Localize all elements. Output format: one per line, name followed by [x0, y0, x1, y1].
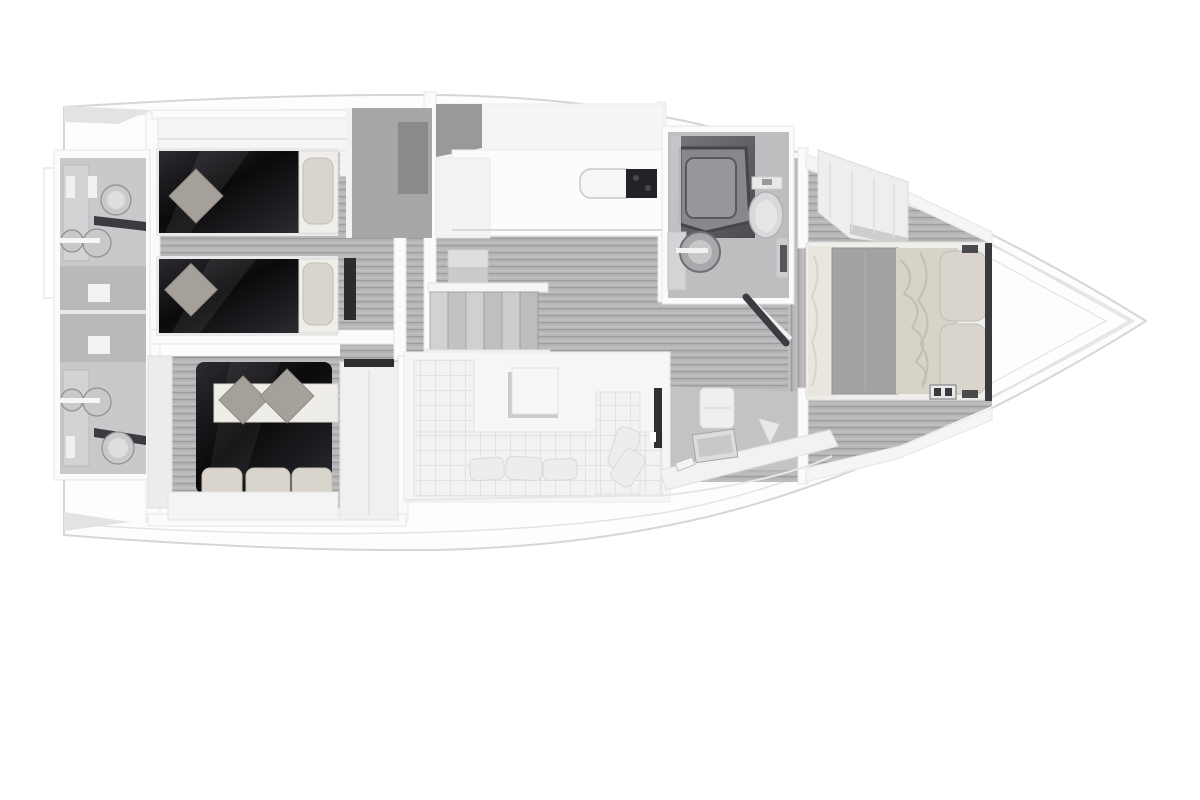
aft-head-lower [58, 362, 146, 474]
faucet [58, 398, 100, 403]
head-toilet [749, 177, 783, 238]
wardrobe-top-trim [344, 359, 394, 367]
toilet-seat [755, 200, 777, 232]
mid-compartment [346, 108, 432, 238]
salon-door-knob [650, 432, 656, 442]
towel-dark [780, 245, 787, 272]
pillow [940, 324, 986, 394]
toilet-seat [107, 191, 125, 209]
buckle [934, 388, 941, 396]
towel-bar [66, 436, 75, 458]
compartment-inner [398, 122, 428, 194]
cooktop-burner [645, 185, 651, 191]
frame-bracket [962, 390, 978, 398]
shower-tray [686, 158, 736, 218]
cooktop-burner [633, 175, 639, 181]
wardrobe [340, 359, 398, 520]
aft-head-upper [58, 158, 146, 266]
frame-bracket [962, 245, 978, 253]
shower-sill [671, 136, 681, 236]
sofa-pillow [469, 457, 504, 481]
stair-treads [430, 292, 538, 352]
compartment-left-trim [346, 108, 352, 238]
locker-column [148, 356, 172, 508]
towel-bar [66, 176, 75, 198]
coffee-table [508, 368, 558, 418]
stair-rail-top [428, 283, 548, 292]
sofa-pillow [505, 456, 542, 481]
stair-tread [448, 292, 466, 352]
galley-counter-left [436, 158, 490, 238]
buckle [945, 388, 952, 396]
stair-landing-upper [448, 250, 488, 270]
stair-tread [520, 292, 538, 352]
headboard-bar [985, 243, 992, 401]
faucet [676, 248, 708, 253]
stair-tread [484, 292, 502, 352]
galley-corner-notch [436, 104, 482, 157]
galley [436, 104, 666, 238]
twin-bed-1 [156, 148, 338, 236]
locker-handle [88, 336, 110, 354]
floorplan-canvas [0, 0, 1200, 800]
table-top [512, 368, 558, 414]
stair-tread [466, 292, 484, 352]
locker-handle [88, 284, 110, 302]
laptop [692, 429, 737, 463]
aft-heads [54, 150, 150, 480]
stair-tread [502, 292, 520, 352]
sofa-pillow [543, 458, 578, 480]
locker-divider [60, 310, 146, 314]
buckle-plate [930, 385, 956, 399]
toilet-seat [108, 438, 128, 458]
yacht-floorplan-render [0, 0, 1200, 800]
stair-tread [430, 292, 448, 352]
strap-buckle [930, 385, 956, 399]
shower [671, 136, 755, 238]
twin-bed-2 [156, 256, 338, 336]
cooktop [626, 169, 657, 198]
faucet [58, 238, 100, 243]
towel-bar [88, 176, 97, 198]
pillow [303, 263, 333, 325]
corridor-doorway-dark [344, 258, 356, 320]
pillow [940, 251, 986, 321]
flush-button [762, 179, 772, 185]
aft-locker-panel [60, 266, 146, 362]
owner-bed [806, 242, 992, 401]
pillow [303, 158, 333, 224]
footboard [168, 492, 338, 520]
